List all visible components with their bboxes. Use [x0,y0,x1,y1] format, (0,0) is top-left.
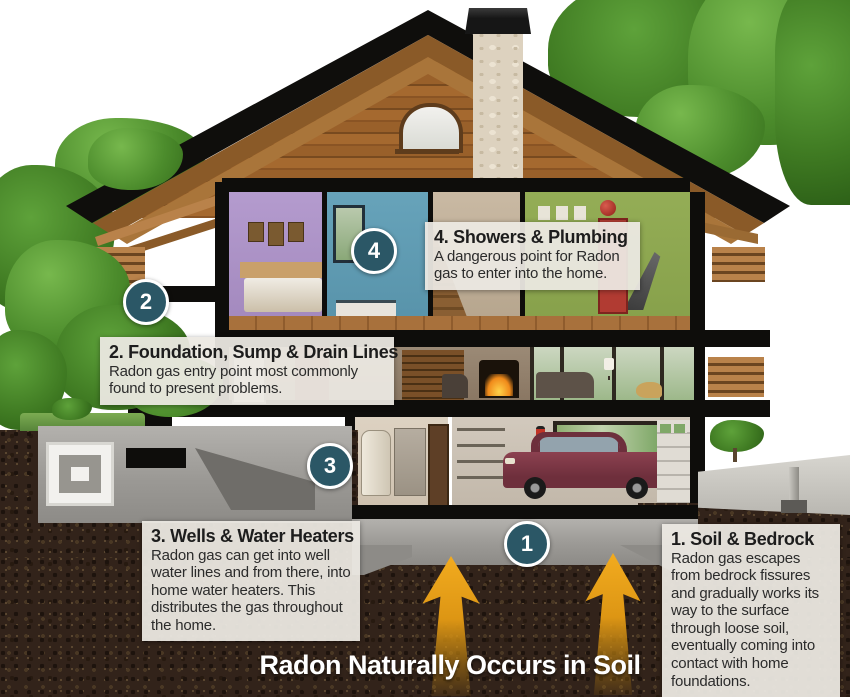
second-floor-wood-floor [229,316,690,330]
car-wheel-front [626,477,648,499]
furnace [394,428,426,496]
sofa [536,372,594,398]
round-clock [600,200,616,216]
callout-heading: 1. Soil & Bedrock [671,529,831,550]
window-mullion [612,347,616,400]
small-tree-trunk [733,448,737,462]
callout-body: Radon gas entry point most commonly foun… [109,363,385,398]
dog [636,382,662,398]
small-frames [538,206,588,220]
right-balcony-railing-lower [708,357,764,397]
garage-door-windows [660,424,687,433]
basement-floor [352,505,698,519]
callout-showers-plumbing: 4. Showers & Plumbing A dangerous point … [425,222,640,290]
callout-heading: 2. Foundation, Sump & Drain Lines [109,342,385,363]
window-well [46,442,114,506]
picture-frames [248,222,318,244]
chimney-cap [465,8,531,34]
small-tree [710,420,764,452]
footing [126,448,186,468]
driveway [698,455,850,515]
car-headlight [505,458,515,464]
water-heater [361,430,391,496]
fireplace-fire [485,374,513,396]
bed-headboard [240,262,322,278]
callout-wells-water-heaters: 3. Wells & Water Heaters Radon gas can g… [142,521,360,641]
radon-house-infographic: 1. Soil & Bedrock Radon gas escapes from… [0,0,850,697]
marker-2: 2 [123,279,169,325]
marker-3: 3 [307,443,353,489]
callout-foundation-sump: 2. Foundation, Sump & Drain Lines Radon … [100,337,394,405]
diagram-title: Radon Naturally Occurs in Soil [190,650,710,681]
vent-pipe-base [781,500,807,513]
callout-body: A dangerous point for Radon gas to enter… [434,248,631,283]
utility-door [428,424,449,508]
marker-4: 4 [351,228,397,274]
garage-shelving [457,428,505,490]
right-balcony-railing-upper [712,247,765,282]
callout-heading: 4. Showers & Plumbing [434,227,631,248]
callout-heading: 3. Wells & Water Heaters [151,526,351,547]
floor-lamp [604,358,614,370]
callout-body: Radon gas can get into well water lines … [151,547,351,635]
right-balcony-slab [690,330,770,347]
bed [244,278,322,312]
armchair [442,374,468,398]
room-divider [322,192,327,330]
marker-1: 1 [504,521,550,567]
car-wheel-rear [524,477,546,499]
